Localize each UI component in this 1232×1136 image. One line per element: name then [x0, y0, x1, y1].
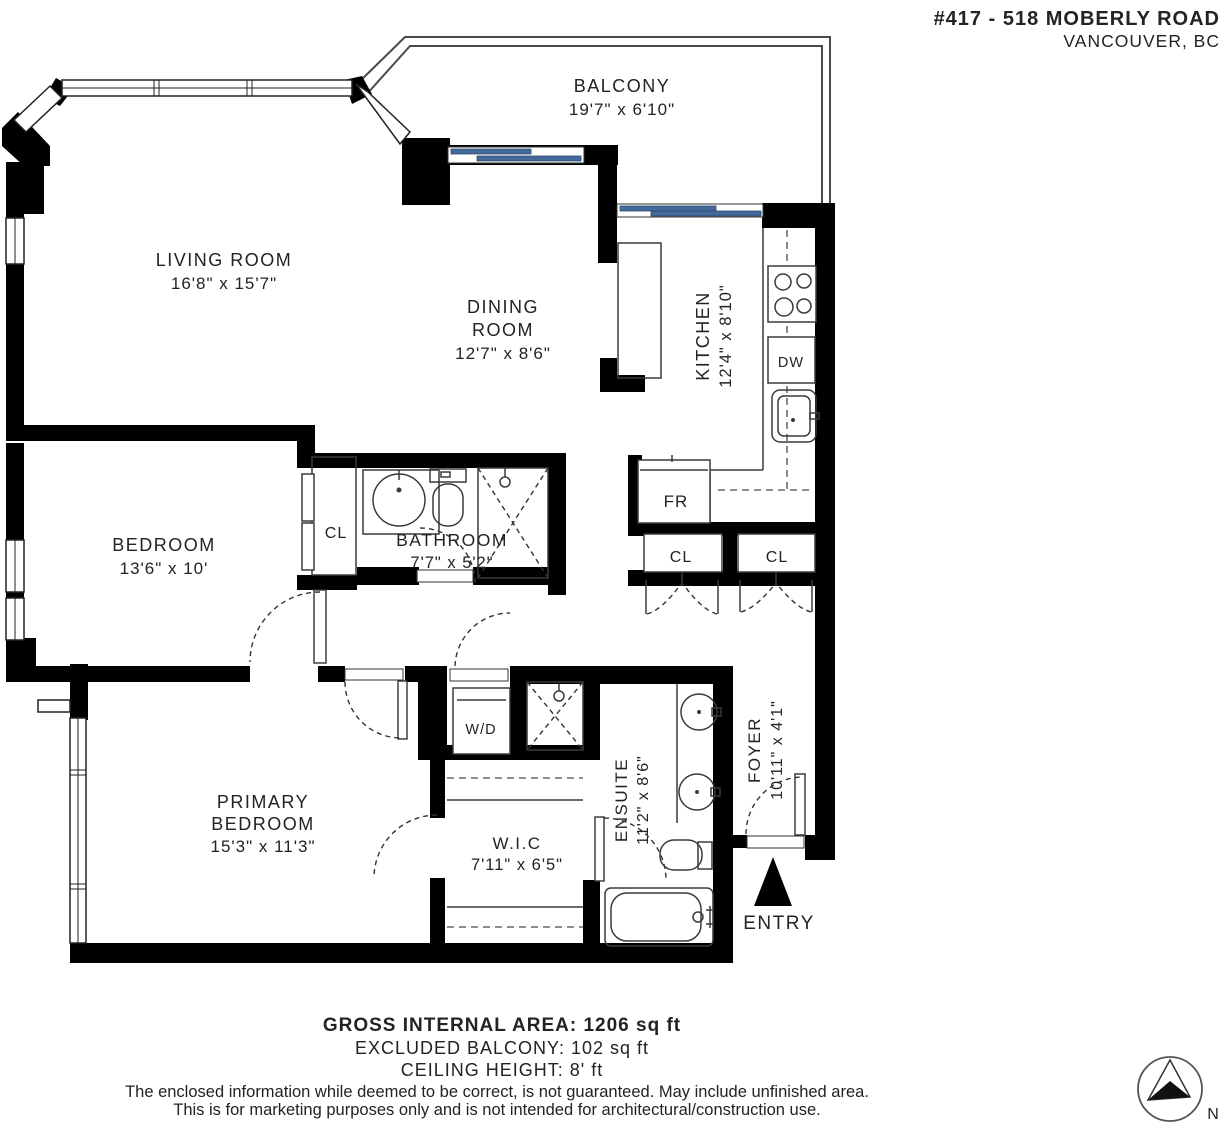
bedroom-dims: 13'6" x 10' [120, 559, 209, 578]
dining-room-label-2: ROOM [472, 320, 534, 340]
bathroom-sink [363, 470, 439, 534]
hall-closet-left-label: CL [670, 549, 692, 566]
hall-closet-right-label: CL [766, 549, 788, 566]
primary-door-swing [345, 682, 401, 738]
living-room-label: LIVING ROOM [156, 250, 293, 270]
kitchen-peninsula [618, 243, 661, 378]
bedroom-closet-label: CL [325, 525, 347, 542]
kitchen-sink [772, 390, 819, 442]
living-room-dims: 16'8" x 15'7" [171, 274, 277, 293]
bedroom-door-leaf [314, 590, 326, 663]
bathroom-toilet [430, 469, 466, 526]
primary-window-small [38, 700, 70, 712]
windows [6, 80, 410, 943]
bay-window-right [356, 84, 410, 144]
primary-bedroom-label-1: PRIMARY [217, 792, 309, 812]
dining-room-dims: 12'7" x 8'6" [455, 344, 551, 363]
bay-window-left [14, 86, 62, 132]
ensuite-door-leaf [595, 817, 604, 881]
balcony-dims: 19'7" x 6'10" [569, 100, 675, 119]
ensuite-label: ENSUITE [612, 758, 631, 842]
laundry-door-swing [455, 613, 510, 666]
bedroom-door-swing [250, 592, 320, 662]
primary-door-leaf [398, 681, 407, 739]
living-slider-glass [451, 149, 531, 154]
floorplan-page: #417 - 518 MOBERLY ROAD VANCOUVER, BC BA… [0, 0, 1232, 1136]
ensuite-toilet [660, 840, 712, 870]
kitchen-label: KITCHEN [693, 291, 713, 381]
foyer-label: FOYER [745, 717, 764, 783]
ensuite-bathtub [605, 888, 714, 946]
bedroom-label: BEDROOM [112, 535, 216, 555]
primary-bedroom-label-2: BEDROOM [211, 814, 315, 834]
fridge-label: FR [664, 492, 689, 511]
entry-arrow-icon [754, 857, 792, 906]
footer-area: GROSS INTERNAL AREA: 1206 sq ft [323, 1015, 681, 1036]
compass-icon [1138, 1057, 1202, 1121]
entry-label: ENTRY [743, 913, 815, 934]
kitchen-slider-glass [620, 206, 716, 211]
wic-door-swing [374, 815, 437, 878]
footer-disclaimer-2: This is for marketing purposes only and … [173, 1101, 821, 1119]
ensuite-shower [527, 682, 583, 750]
kitchen-dims: 12'4" x 8'10" [717, 284, 735, 388]
header-title: #417 - 518 MOBERLY ROAD [934, 8, 1220, 30]
washer-dryer-box [453, 688, 510, 754]
foyer-dims: 10'11" x 4'1" [769, 700, 786, 800]
stove [768, 266, 816, 322]
floorplan-canvas: #417 - 518 MOBERLY ROAD VANCOUVER, BC BA… [0, 0, 1232, 1136]
ensuite-dims: 11'2" x 8'6" [635, 755, 652, 845]
header-subtitle: VANCOUVER, BC [1063, 31, 1220, 51]
dishwasher-label: DW [778, 355, 804, 371]
footer-ceiling: CEILING HEIGHT: 8' ft [401, 1060, 603, 1080]
footer-balcony: EXCLUDED BALCONY: 102 sq ft [355, 1038, 649, 1058]
footer-disclaimer-1: The enclosed information while deemed to… [125, 1083, 869, 1101]
entry-marker [754, 857, 792, 906]
primary-bedroom-dims: 15'3" x 11'3" [211, 837, 316, 856]
bedroom-closet [302, 457, 356, 575]
compass-north-label: N [1207, 1106, 1219, 1123]
washer-dryer-label: W/D [465, 722, 496, 738]
balcony-label: BALCONY [574, 76, 671, 96]
wic-label: W.I.C [492, 834, 541, 853]
wic-dims: 7'11" x 6'5" [471, 856, 563, 874]
bathroom-label: BATHROOM [396, 530, 508, 550]
bathroom-dims: 7'7" x 5'2" [410, 554, 493, 572]
dining-room-label-1: DINING [467, 297, 539, 317]
fridge-box [638, 455, 710, 523]
entry-door-leaf [795, 774, 805, 835]
